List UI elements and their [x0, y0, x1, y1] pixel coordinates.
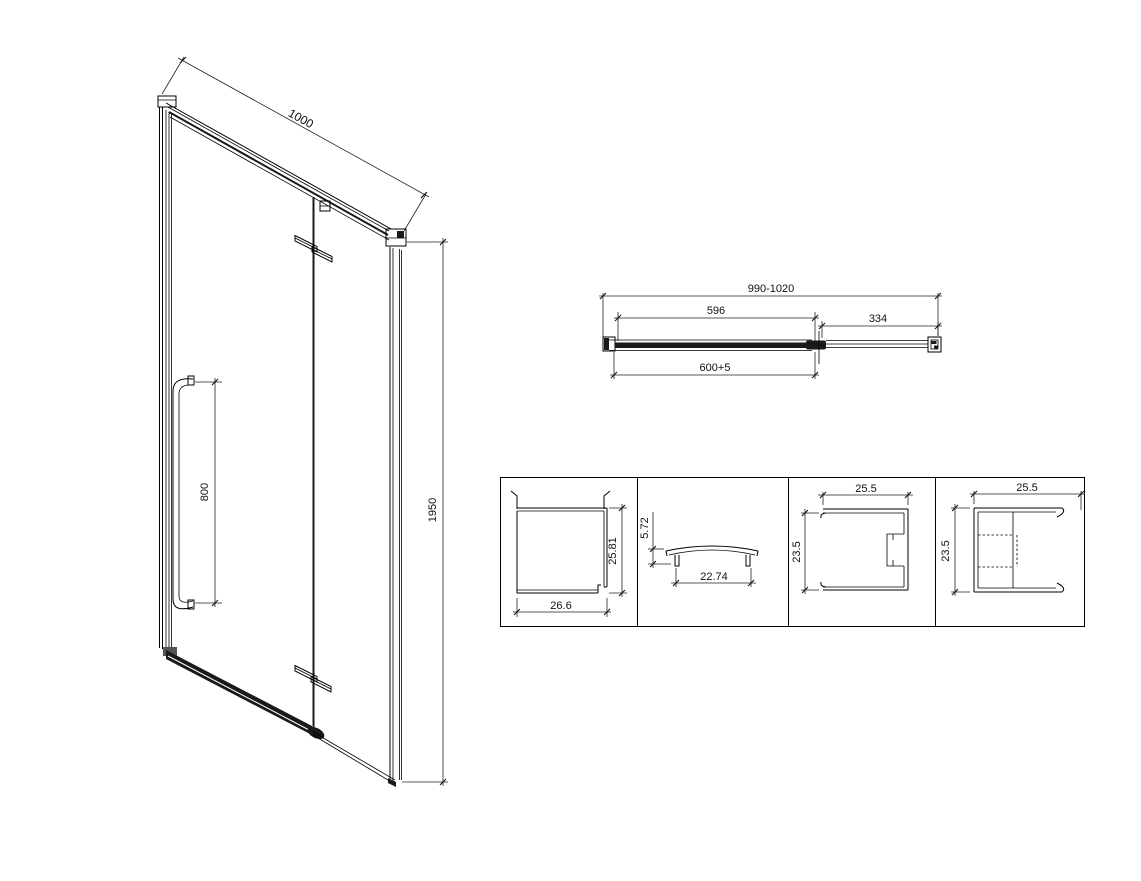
- detail4-width-label: 25.5: [1016, 482, 1037, 494]
- door-handle: [173, 376, 194, 609]
- detail3-width-label: 25.5: [855, 483, 876, 495]
- pivot-connector: [806, 341, 826, 350]
- iso-door-view: 1000: [158, 57, 448, 787]
- fixed-panel-edge: [388, 247, 402, 787]
- detail3-height-label: 23.5: [791, 541, 803, 562]
- handle-dimension: 800: [195, 378, 222, 607]
- detail1-width-label: 26.6: [550, 600, 571, 612]
- iso-height-label: 1950: [427, 498, 439, 522]
- detail-glazing-channel: 25.5 23.5: [940, 482, 1085, 596]
- plan-view: 990-1020 596 334 600+5: [599, 283, 942, 379]
- plan-overall-label: 990-1020: [748, 283, 795, 295]
- detail1-height-dimension: 25.81: [607, 504, 627, 597]
- detail2-height-label: 5.72: [639, 517, 651, 538]
- panel-foot: [388, 778, 396, 787]
- detail1-width-dimension: 26.6: [513, 598, 611, 617]
- detail3-height-dimension: 23.5: [791, 509, 819, 594]
- top-left-cap: [158, 96, 176, 107]
- detail4-height-dimension: 23.5: [940, 504, 970, 596]
- detail-wall-channel: 25.81 26.6: [511, 491, 627, 617]
- door-glass-section: [615, 343, 812, 349]
- technical-drawing-page: 1000: [0, 0, 1141, 881]
- plan-panel-label: 334: [869, 313, 887, 325]
- profile-details-strip: 25.81 26.6 5.72: [501, 478, 1086, 627]
- plan-panel-dimension: 334: [818, 313, 942, 329]
- technical-drawing-canvas: 1000: [0, 0, 1141, 881]
- detail-cover-cap: 5.72 22.74: [639, 512, 758, 587]
- left-wall-profile: [160, 107, 178, 656]
- right-wall-bracket: [928, 337, 941, 352]
- detail-slotted-channel: 25.5 23.5: [791, 483, 913, 594]
- plan-door-dimension: 596: [614, 305, 819, 321]
- detail4-height-label: 23.5: [940, 540, 952, 561]
- detail2-height-dimension: 5.72: [639, 512, 671, 568]
- iso-height-dimension: 1950: [402, 238, 448, 786]
- top-rail: [158, 96, 406, 246]
- detail1-height-label: 25.81: [607, 537, 619, 565]
- plan-entry-label: 600+5: [700, 362, 731, 374]
- handle-dimension-label: 800: [199, 483, 211, 501]
- hinge-edge: [314, 197, 331, 733]
- detail2-width-dimension: 22.74: [671, 568, 756, 587]
- plan-section: [603, 331, 941, 364]
- plan-entry-dimension: 600+5: [610, 362, 819, 378]
- detail2-width-label: 22.74: [700, 571, 728, 583]
- iso-width-label: 1000: [286, 106, 316, 131]
- plan-overall-dimension: 990-1020: [599, 283, 942, 299]
- detail3-width-dimension: 25.5: [818, 483, 913, 505]
- detail4-width-dimension: 25.5: [970, 482, 1085, 510]
- plan-door-label: 596: [707, 305, 725, 317]
- bottom-rail: [166, 650, 395, 783]
- iso-width-dimension: 1000: [162, 57, 429, 231]
